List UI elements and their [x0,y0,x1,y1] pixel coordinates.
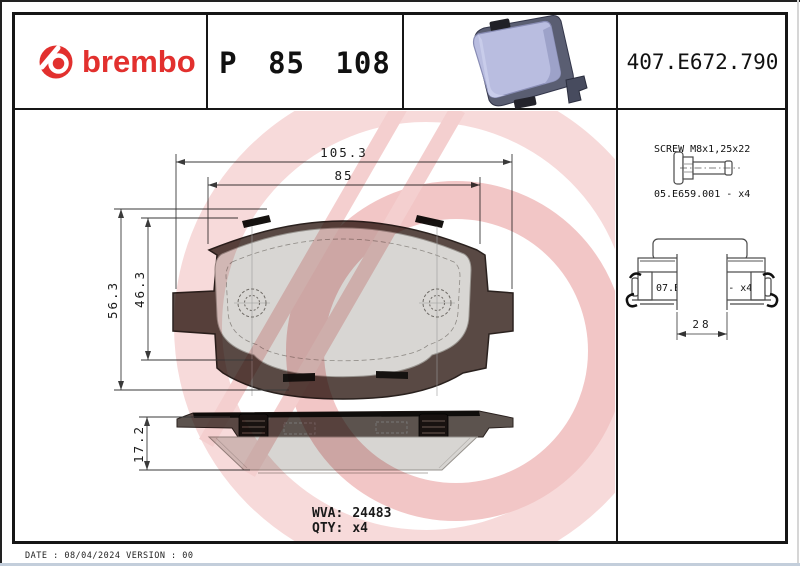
dim-width-inner: 85 [334,168,353,183]
brake-pad-3d-render [448,10,598,112]
clip-width-dim: 28 [692,318,711,331]
wva-value: 24483 [352,506,391,521]
reference-block: WVA:24483 QTY:x4 [312,506,391,536]
wva-row: WVA:24483 [312,506,391,521]
screw-drawing [670,146,742,190]
friction-material-front [215,228,471,377]
dim-height-outer: 56.3 [105,281,120,319]
page-top-edge [0,0,800,2]
part-number: P 85 108 [207,46,403,80]
clip-spring-drawing: 28 [620,238,788,362]
technical-drawing: 105.3 85 56.3 46.3 17.2 [12,110,616,544]
right-panel-divider [616,12,618,544]
friction-material-edge [209,437,477,473]
dim-width-outer: 105.3 [320,145,368,160]
dim-height-inner: 46.3 [132,270,147,308]
brand-wordmark: brembo [82,44,196,80]
page-right-edge [797,0,799,566]
catalog-number: 407.E672.790 [617,50,788,74]
dim-thickness: 17.2 [131,425,146,463]
qty-label: QTY: [312,521,343,536]
brembo-logo-icon [38,44,74,80]
qty-row: QTY:x4 [312,521,391,536]
page-left-edge [0,0,2,566]
backing-plate-edge [177,411,513,437]
qty-value: x4 [352,521,368,536]
date-version-line: DATE : 08/04/2024 VERSION : 00 [25,551,194,561]
wva-label: WVA: [312,506,343,521]
